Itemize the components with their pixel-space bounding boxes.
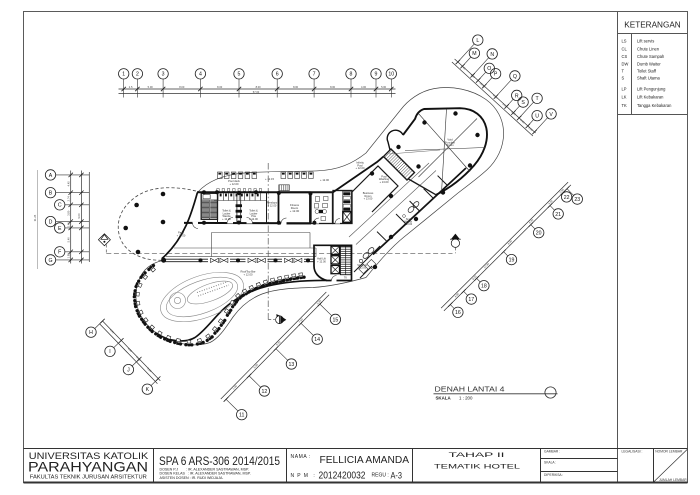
- svg-text:2.74: 2.74: [66, 196, 70, 202]
- svg-text:B: B: [49, 191, 53, 197]
- svg-text:R: R: [515, 93, 519, 99]
- svg-text:+ 13.00: + 13.00: [364, 197, 373, 201]
- svg-text:G: G: [48, 258, 52, 264]
- svg-text:TEMATIK HOTEL: TEMATIK HOTEL: [434, 463, 521, 470]
- svg-text:5.40: 5.40: [66, 237, 70, 243]
- svg-text:57.00: 57.00: [253, 90, 260, 94]
- svg-text:Lift Kebakaran: Lift Kebakaran: [637, 95, 664, 100]
- svg-text:20: 20: [536, 231, 542, 237]
- svg-text:CS: CS: [622, 54, 628, 59]
- svg-text:FAKULTAS TEKNIK JURUSAN ARSITE: FAKULTAS TEKNIK JURUSAN ARSITEKTUR: [30, 475, 147, 481]
- svg-text:5.00: 5.00: [148, 85, 154, 89]
- svg-text:5: 5: [238, 72, 241, 78]
- svg-text:A: A: [49, 173, 53, 179]
- svg-text:DW: DW: [622, 62, 629, 67]
- svg-text:9.00: 9.00: [77, 213, 81, 219]
- svg-text:2.5: 2.5: [129, 85, 133, 89]
- svg-text:1 : 200: 1 : 200: [459, 395, 473, 400]
- svg-text:E: E: [58, 226, 62, 232]
- svg-text:6: 6: [276, 72, 279, 78]
- svg-text:8.00: 8.00: [179, 85, 185, 89]
- svg-text:PARAHYANGAN: PARAHYANGAN: [28, 459, 148, 475]
- svg-text:+ 12.00: + 12.00: [268, 203, 277, 207]
- svg-text:LS: LS: [622, 39, 627, 44]
- svg-text:LEGALISASI :: LEGALISASI :: [622, 449, 643, 453]
- svg-text:M: M: [472, 51, 476, 57]
- svg-text:8.00: 8.00: [330, 85, 336, 89]
- svg-text:H: H: [89, 330, 93, 336]
- svg-text:S: S: [521, 100, 525, 106]
- svg-text:SKALA: SKALA: [436, 395, 452, 400]
- svg-text:F: F: [58, 250, 61, 256]
- svg-text:11: 11: [239, 413, 244, 419]
- svg-text:C: C: [58, 203, 62, 209]
- svg-text:Lift Pengunjung: Lift Pengunjung: [637, 87, 666, 92]
- svg-text:DIPERIKSA :: DIPERIKSA :: [544, 473, 563, 477]
- svg-text:SKALA :: SKALA :: [544, 460, 556, 464]
- svg-text:SPA 6 ARS-306 2014/2015: SPA 6 ARS-306 2014/2015: [159, 454, 280, 468]
- svg-text:GAMBAR :: GAMBAR :: [544, 449, 560, 453]
- svg-text:8: 8: [350, 72, 353, 78]
- svg-text:Lift servis: Lift servis: [637, 39, 654, 44]
- svg-text:D: D: [49, 220, 53, 226]
- svg-text:18: 18: [481, 284, 487, 290]
- svg-text:NOMOR LEMBAR: NOMOR LEMBAR: [655, 449, 683, 453]
- svg-text:TK: TK: [622, 103, 628, 108]
- svg-text:12: 12: [262, 389, 268, 395]
- svg-text:17: 17: [468, 297, 474, 303]
- svg-text:ASISTEN DOSEN : IR. RUDI WIDJA: ASISTEN DOSEN : IR. RUDI WIDJAJA.: [160, 476, 224, 480]
- svg-text:+ 12.00: + 12.00: [317, 259, 326, 263]
- svg-text:8.00: 8.00: [256, 85, 262, 89]
- svg-text:+ 12.15: + 12.15: [265, 177, 275, 181]
- svg-text:3.80: 3.80: [66, 210, 70, 216]
- svg-text:P: P: [494, 72, 498, 78]
- svg-text:4.45: 4.45: [66, 181, 70, 187]
- svg-text:LK: LK: [622, 95, 627, 100]
- svg-text:Chute Linen: Chute Linen: [637, 47, 660, 52]
- svg-text:U: U: [535, 114, 539, 120]
- svg-text:V: V: [549, 112, 553, 118]
- svg-text:+ 12.00: + 12.00: [177, 233, 186, 237]
- svg-text:+ 12.00: + 12.00: [243, 272, 253, 276]
- svg-text:Dumb Waiter: Dumb Waiter: [637, 62, 661, 67]
- svg-text:FELLICIA AMANDA: FELLICIA AMANDA: [320, 454, 410, 466]
- svg-text:CL: CL: [622, 47, 628, 52]
- svg-text:Room: Room: [446, 143, 454, 147]
- svg-text:REGU :: REGU :: [372, 472, 389, 478]
- svg-text:16: 16: [455, 310, 461, 316]
- svg-text:2: 2: [136, 72, 139, 78]
- svg-text:Tangga Kebakaran: Tangga Kebakaran: [637, 103, 672, 108]
- svg-text:A-3: A-3: [391, 470, 403, 480]
- svg-text:1: 1: [122, 72, 125, 78]
- svg-text:+ 13.00: + 13.00: [379, 180, 389, 184]
- svg-text:Toilet Staff: Toilet Staff: [637, 69, 657, 74]
- svg-text:8.00: 8.00: [217, 85, 223, 89]
- svg-text:8.00: 8.00: [293, 85, 299, 89]
- svg-text:23: 23: [574, 197, 580, 203]
- svg-text:NAMA :: NAMA :: [291, 454, 312, 460]
- svg-text:LP: LP: [622, 87, 627, 92]
- svg-text:N P M :: N P M :: [291, 473, 316, 479]
- svg-text:9: 9: [375, 72, 378, 78]
- svg-text:Q: Q: [513, 74, 517, 80]
- svg-text:JUMLAH LEMBAR: JUMLAH LEMBAR: [659, 478, 687, 482]
- svg-text:+ 12.00: + 12.00: [320, 178, 330, 182]
- svg-text:31.25: 31.25: [33, 214, 37, 221]
- svg-text:+ 12.00: + 12.00: [404, 223, 413, 226]
- svg-text:14: 14: [314, 337, 320, 343]
- svg-text:7: 7: [313, 72, 316, 78]
- svg-text:21: 21: [555, 212, 561, 218]
- svg-text:TK: TK: [344, 275, 348, 279]
- svg-text:KETERANGAN: KETERANGAN: [624, 21, 681, 30]
- svg-text:J: J: [127, 368, 130, 374]
- svg-text:TAHAP II: TAHAP II: [449, 452, 505, 459]
- svg-text:10: 10: [388, 72, 394, 78]
- svg-text:S: S: [622, 76, 625, 81]
- svg-text:+ 12.00: + 12.00: [355, 166, 365, 170]
- svg-text:+ 12.00: + 12.00: [229, 182, 239, 186]
- svg-text:Chute Sampah: Chute Sampah: [637, 54, 665, 59]
- svg-text:19: 19: [509, 258, 515, 264]
- svg-text:5.00: 5.00: [381, 85, 387, 89]
- svg-text:+ 12.00: + 12.00: [290, 209, 300, 213]
- svg-text:+ 12.00: + 12.00: [222, 217, 231, 221]
- svg-text:K: K: [146, 387, 150, 393]
- svg-text:4.00: 4.00: [361, 85, 367, 89]
- svg-text:3: 3: [162, 72, 165, 78]
- svg-text:2012420032: 2012420032: [319, 470, 366, 481]
- svg-text:13: 13: [289, 362, 295, 368]
- svg-text:1.85: 1.85: [66, 253, 70, 259]
- svg-text:L: L: [476, 38, 479, 44]
- svg-text:DENAH LANTAI 4: DENAH LANTAI 4: [435, 384, 505, 393]
- svg-text:Shaft Utama: Shaft Utama: [637, 76, 660, 81]
- svg-text:4: 4: [199, 72, 202, 78]
- svg-text:22: 22: [564, 195, 570, 201]
- svg-text:I: I: [109, 349, 110, 355]
- svg-text:N: N: [490, 52, 494, 58]
- svg-text:15: 15: [333, 317, 339, 323]
- svg-text:1.40: 1.40: [66, 222, 70, 228]
